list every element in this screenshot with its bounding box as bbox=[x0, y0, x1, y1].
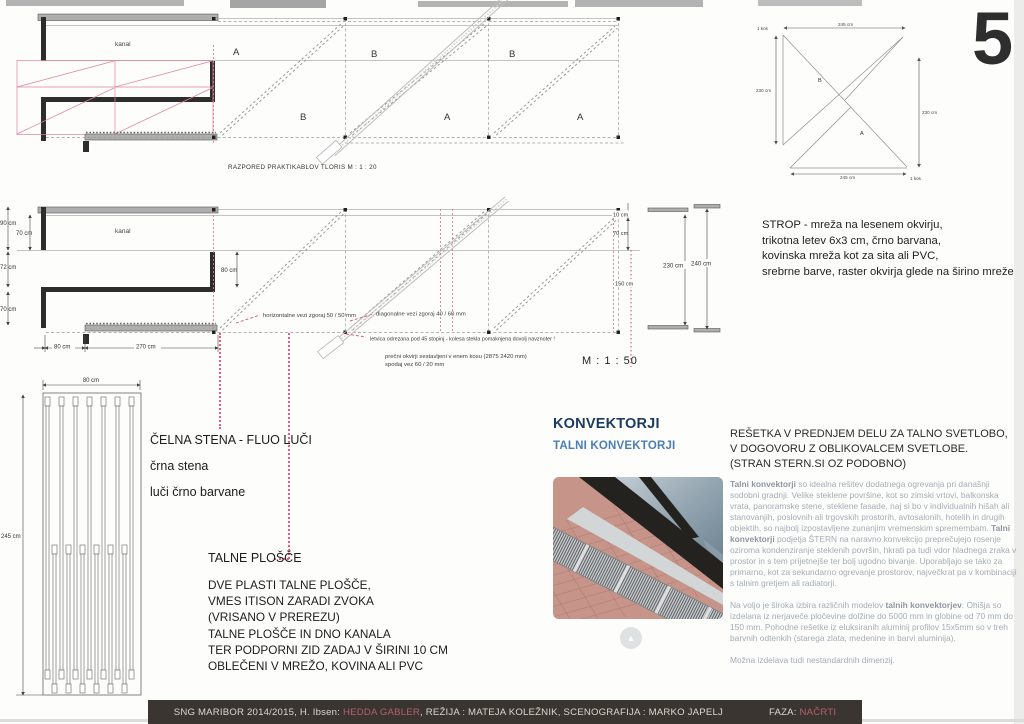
title-block-bar: SNG MARIBOR 2014/2015, H. Ibsen: HEDDA G… bbox=[148, 700, 862, 724]
konvektorji-title: KONVEKTORJI bbox=[553, 416, 660, 432]
faza-value: NAČRTI bbox=[800, 707, 837, 718]
detail-triangle-b: B bbox=[818, 78, 822, 84]
fluo-dim-width: 80 cm bbox=[83, 378, 99, 384]
resetka-note: REŠETKA V PREDNJEM DELU ZA TALNO SVETLOB… bbox=[730, 427, 1008, 472]
plan-black-walls bbox=[41, 17, 215, 152]
strop-line: kovinska mreža kot za sita ali PVC, bbox=[762, 249, 1014, 265]
section-dim-70a: 70 cm bbox=[16, 231, 32, 237]
talne-plosce-block2: TALNE PLOŠČE IN DNO KANALA TER PODPORNI … bbox=[208, 627, 448, 674]
faza-label: FAZA: bbox=[769, 707, 800, 718]
note-line: TALNE PLOŠČE IN DNO KANALA bbox=[208, 627, 448, 643]
detail-dim-bottom: 245 cm bbox=[840, 175, 855, 180]
convector-photo bbox=[553, 477, 723, 619]
plan-overlay-diagonal bbox=[316, 0, 507, 164]
section-dim-10: 10 cm bbox=[613, 213, 629, 219]
strop-line: srebrne barve, raster okvirja glede na š… bbox=[762, 265, 1014, 281]
celna-stena-note: ČELNA STENA - FLUO LUČI bbox=[150, 433, 312, 447]
section-note-frames-2: spodaj vez 60 / 20 mm bbox=[385, 362, 444, 368]
production-credit: , REŽIJA : MATEJA KOLEŽNIK, SCENOGRAFIJA… bbox=[420, 707, 723, 718]
section-dim-90: 90 cm bbox=[0, 221, 16, 227]
plan-bay-label: A bbox=[577, 112, 584, 123]
talni-konvektorji-subtitle: TALNI KONVEKTORJI bbox=[553, 440, 675, 452]
pink-connector-line bbox=[219, 333, 221, 429]
plan-kanal-label: kanal bbox=[115, 41, 131, 48]
plan-bay-label: B bbox=[300, 112, 306, 123]
product-description: Talni konvektorji so idealna rešitev dod… bbox=[730, 479, 1017, 677]
product-paragraph: Talni konvektorji so idealna rešitev dod… bbox=[730, 479, 1017, 589]
section-drawing: 90 cm 70 cm 72 cm 70 cm 80 cm 80 cm 270 … bbox=[0, 195, 740, 380]
note-line: OBLEČENI V MREŽO, KOVINA ALI PVC bbox=[208, 659, 448, 675]
section-note-diagonal: diagonalne vezi zgoraj 40 / 60 mm bbox=[376, 312, 466, 318]
scanned-plan-sheet: { "sheet": { "number": "5" }, "plan": { … bbox=[0, 0, 1024, 724]
section-note-horizontal: horizontalne vezi zgoraj 50 / 50 mm bbox=[263, 313, 356, 319]
section-dim-80: 80 cm bbox=[54, 345, 70, 351]
plan-diagonal-braces bbox=[220, 23, 617, 135]
sheet-number: 5 bbox=[972, 2, 1013, 76]
resetka-line: (STRAN STERN.SI OZ PODOBNO) bbox=[730, 457, 1008, 472]
bold-term: Talni konvektorji bbox=[730, 479, 796, 489]
fluo-dim-height: 245 cm bbox=[1, 534, 21, 540]
crna-stena-note: črna stena bbox=[150, 459, 208, 473]
detail-kos-label: 1 kos bbox=[757, 26, 769, 31]
section-dim-240: 240 cm bbox=[691, 261, 711, 268]
production-credit: SNG MARIBOR 2014/2015, H. Ibsen: bbox=[174, 707, 343, 718]
note-line: DVE PLASTI TALNE PLOŠČE, bbox=[208, 578, 374, 594]
scroll-top-button: ▲ bbox=[620, 627, 642, 649]
strop-line: STROP - mreža na lesenem okvirju, bbox=[762, 218, 1014, 234]
plan-top-wall bbox=[38, 14, 218, 21]
product-paragraph: Možna izdelava tudi nestandardnih dimenz… bbox=[730, 655, 1017, 666]
plan-bottom-wall bbox=[85, 134, 217, 140]
fluo-wall-drawing: 80 cm 245 cm bbox=[0, 368, 170, 724]
section-kanal-label: kanal bbox=[115, 228, 131, 235]
scan-artifact bbox=[758, 0, 862, 6]
bold-term: talnih konvektorjev bbox=[885, 600, 961, 610]
strop-line: trikotna letev 6x3 cm, črno barvana, bbox=[762, 234, 1014, 250]
resetka-line: V DOGOVORU Z OBLIKOVALCEM SVETLOBE. bbox=[730, 442, 1008, 457]
plan-bay-label: A bbox=[233, 47, 240, 58]
section-dim-inner-80: 80 cm bbox=[221, 268, 237, 274]
plan-drawing: kanal A B B A B A RAZPORED PRAKTIKABLOV … bbox=[0, 0, 740, 195]
luci-note: luči črno barvane bbox=[150, 485, 245, 499]
section-scale: M : 1 : 50 bbox=[582, 355, 638, 367]
section-note-letvica: letvica odrezana pod 45 stopinj - kolesa… bbox=[370, 337, 555, 343]
plan-bay-label: B bbox=[371, 49, 377, 60]
note-line: TER PODPORNI ZID ZADAJ V ŠIRINI 10 CM bbox=[208, 643, 448, 659]
talne-plosce-block1: DVE PLASTI TALNE PLOŠČE, VMES ITISON ZAR… bbox=[208, 578, 374, 625]
strop-note: STROP - mreža na lesenem okvirju, trikot… bbox=[762, 218, 1014, 280]
section-dim-70r: 70 cm bbox=[613, 231, 629, 237]
detail-dim-right: 230 cm bbox=[922, 110, 937, 115]
product-paragraph: Na voljo je široka izbira različnih mode… bbox=[730, 600, 1017, 644]
triangle-detail-drawing: 1 kos 245 cm 230 cm 230 cm 245 cm 1 kos … bbox=[750, 8, 960, 190]
section-dim-72: 72 cm bbox=[0, 265, 16, 271]
fluo-tubes bbox=[45, 397, 134, 693]
detail-triangle-a: A bbox=[860, 131, 864, 137]
section-dim-150: 150 cm bbox=[615, 282, 634, 288]
plan-bay-label: B bbox=[509, 49, 515, 60]
note-line: (VRISANO V PREREZU) bbox=[208, 610, 374, 626]
resetka-line: REŠETKA V PREDNJEM DELU ZA TALNO SVETLOB… bbox=[730, 427, 1008, 442]
plan-caption: RAZPORED PRAKTIKABLOV TLORIS M : 1 : 20 bbox=[228, 164, 377, 171]
talne-plosce-title: TALNE PLOŠČE bbox=[208, 551, 302, 565]
plan-bay-label: A bbox=[444, 112, 451, 123]
section-dim-270: 270 cm bbox=[136, 345, 156, 351]
play-title: HEDDA GABLER bbox=[343, 707, 420, 718]
detail-dim-top: 245 cm bbox=[838, 22, 853, 27]
section-dim-70b: 70 cm bbox=[0, 307, 16, 313]
note-line: VMES ITISON ZARADI ZVOKA bbox=[208, 594, 374, 610]
detail-kos-label: 1 kos bbox=[910, 176, 922, 181]
triangle-detail-lines bbox=[783, 35, 907, 168]
arrow-up-icon: ▲ bbox=[627, 633, 636, 643]
section-note-frames-1: prečni okvirji sestavljeni v enem kosu (… bbox=[385, 354, 527, 360]
detail-dim-left: 230 cm bbox=[756, 88, 771, 93]
section-dim-230: 230 cm bbox=[663, 263, 683, 270]
